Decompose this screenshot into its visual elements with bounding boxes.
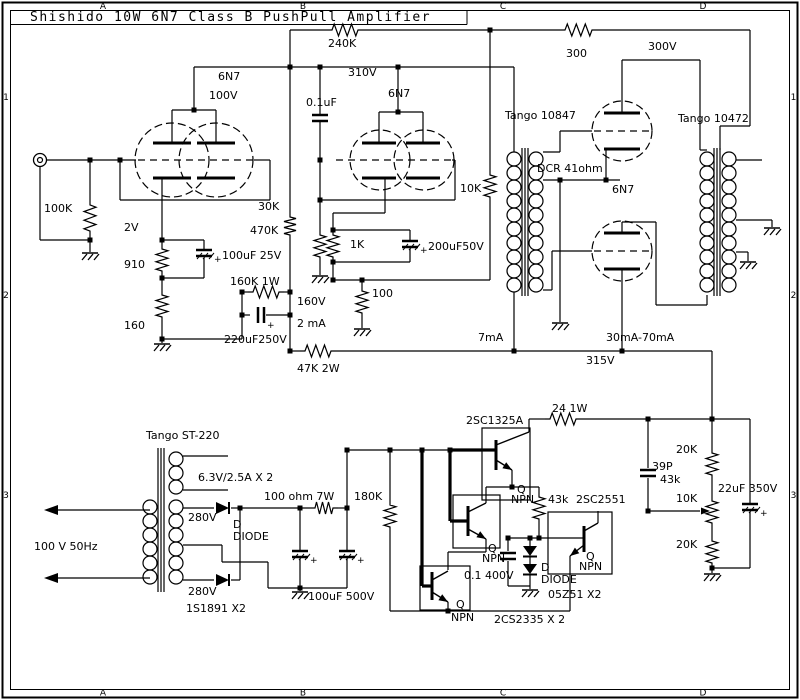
amplifier-schematic: AABBCCDD112233 Shishido 10W 6N7 Class B … (0, 0, 800, 700)
junction-dot (488, 28, 493, 33)
resistor (84, 200, 96, 236)
junction-dot (240, 290, 245, 295)
schematic-label: 1K (350, 238, 365, 251)
transformer-coil (529, 180, 543, 194)
ground-symbol (528, 591, 533, 597)
ground-symbol (354, 330, 359, 336)
transformer-coil (700, 166, 714, 180)
transformer-coil (169, 500, 183, 514)
ground-symbol (764, 229, 769, 235)
schematic-label: 2CS2335 X 2 (494, 613, 565, 626)
ground-symbol (82, 254, 87, 260)
resistor (327, 230, 339, 262)
transformer-coil (700, 152, 714, 166)
junction-dot (238, 506, 243, 511)
transformer-coil (700, 278, 714, 292)
transformer-coil (700, 222, 714, 236)
junction-dot (360, 278, 365, 283)
schematic-label: 43k (660, 473, 681, 486)
junction-dot (510, 485, 515, 490)
transformer-coil (700, 194, 714, 208)
schematic-label: 100 (372, 287, 393, 300)
schematic-label: 6N7 (612, 183, 634, 196)
resistor (706, 536, 718, 568)
ac-arrow (44, 573, 58, 583)
schematic-label: NPN (511, 493, 534, 506)
junction-dot (646, 417, 651, 422)
grid-ref-letter: C (500, 689, 506, 699)
ground-symbol (360, 330, 365, 336)
resistor (560, 24, 597, 36)
transformer-coil (169, 556, 183, 570)
schematic-label: 0.1uF (306, 96, 337, 109)
ground-symbol (324, 277, 329, 283)
schematic-label: 280V (188, 585, 217, 598)
junction-dot (331, 228, 336, 233)
transformer-coil (529, 222, 543, 236)
schematic-label: 100 V 50Hz (34, 540, 98, 553)
schematic-label: 10K (460, 182, 482, 195)
junction-dot (318, 198, 323, 203)
schematic-label: 47K 2W (297, 362, 340, 375)
transformer-coil (169, 528, 183, 542)
ground-symbol (94, 254, 99, 260)
transformer-coil (722, 208, 736, 222)
transformer-coil (700, 250, 714, 264)
junction-dot (160, 238, 165, 243)
transformer-coil (507, 222, 521, 236)
transformer-coil (700, 264, 714, 278)
ground-symbol (534, 591, 539, 597)
transformer-coil (507, 250, 521, 264)
schematic-label: 310V (348, 66, 377, 79)
junction-dot (396, 65, 401, 70)
schematic-label: 39P (652, 460, 673, 473)
schematic-label: 2V (124, 221, 139, 234)
grid-ref-number: 2 (3, 291, 9, 301)
ground-symbol (522, 591, 527, 597)
transformer-coil (507, 236, 521, 250)
diode (216, 502, 229, 514)
input-jack (38, 158, 43, 163)
junction-dot (192, 108, 197, 113)
transformer-coil (507, 152, 521, 166)
ground-symbol (312, 277, 317, 283)
schematic-label: 2SC1325A (466, 414, 524, 427)
junction-dot (345, 448, 350, 453)
junction-dot (288, 65, 293, 70)
transformer-coil (722, 152, 736, 166)
grid-ref-number: 3 (3, 491, 9, 501)
schematic-label: 30K (258, 200, 280, 213)
transformer-coil (529, 236, 543, 250)
grid-ref-letter: D (700, 2, 707, 12)
schematic-label: 220uF250V (224, 333, 287, 346)
schematic-label: 2SC2551 (576, 493, 626, 506)
junction-dot (646, 509, 651, 514)
ground-symbol (318, 277, 323, 283)
schematic-label: Tango ST-220 (145, 429, 219, 442)
junction-dot (331, 278, 336, 283)
transistor-arrow (570, 548, 579, 556)
resistor (310, 502, 338, 514)
ground-symbol (558, 324, 563, 330)
junction-dot (345, 506, 350, 511)
transformer-coil (507, 180, 521, 194)
schematic-label: 24 1W (552, 402, 587, 415)
schematic-label: NPN (579, 560, 602, 573)
resistor (314, 230, 326, 262)
junction-dot (318, 158, 323, 163)
transistor-collector (468, 503, 486, 512)
ground-symbol (154, 345, 159, 351)
schematic-title: Shishido 10W 6N7 Class B PushPull Amplif… (30, 10, 431, 25)
schematic-label: 30mA-70mA (606, 331, 675, 344)
schematic-label: 10K (676, 492, 698, 505)
junction-dot (710, 566, 715, 571)
plus-mark: + (267, 321, 275, 331)
ground-symbol (740, 263, 745, 269)
junction-dot (558, 178, 563, 183)
transformer-coil (722, 166, 736, 180)
junction-dot (88, 158, 93, 163)
ground-symbol (704, 575, 709, 581)
schematic-label: 22uF 350V (718, 482, 778, 495)
junction-dot (288, 313, 293, 318)
schematic-label: 100uF 500V (308, 590, 375, 603)
junction-dot (331, 260, 336, 265)
schematic-label: 0.1 400V (464, 569, 514, 582)
ground-symbol (564, 324, 569, 330)
ground-symbol (776, 229, 781, 235)
schematic-label: 100uF 25V (222, 249, 282, 262)
plus-mark: + (310, 556, 318, 566)
schematic-label: 20K (676, 443, 698, 456)
schematic-label: Tango 10847 (504, 109, 576, 122)
junction-dot (420, 448, 425, 453)
transformer-coil (143, 556, 157, 570)
transformer-coil (169, 514, 183, 528)
schematic-label: 6.3V/2.5A X 2 (198, 471, 273, 484)
ground-symbol (752, 263, 757, 269)
junction-dot (318, 65, 323, 70)
plus-mark: + (760, 509, 768, 519)
transformer-coil (169, 480, 183, 494)
input-jack (34, 154, 47, 167)
ground-symbol (710, 575, 715, 581)
ground-symbol (716, 575, 721, 581)
resistor (484, 170, 496, 202)
junction-dot (506, 536, 511, 541)
plus-mark: + (214, 255, 222, 265)
transformer-coil (722, 180, 736, 194)
transformer-coil (529, 194, 543, 208)
schematic-page: AABBCCDD112233 Shishido 10W 6N7 Class B … (0, 0, 800, 700)
transistor-arrow (438, 594, 448, 602)
labels-layer: 6N7100V240K310V6N70.1uF300300VTango 1084… (34, 37, 778, 626)
transformer-coil (529, 264, 543, 278)
ac-arrow (44, 505, 58, 515)
junction-dot (620, 349, 625, 354)
ground-symbol (552, 324, 557, 330)
schematic-label: Q (456, 598, 465, 611)
schematic-label: 160 (124, 319, 145, 332)
zener-diode (523, 564, 537, 574)
ground-symbol (746, 263, 751, 269)
wires-layer (40, 30, 772, 611)
junction-dot (288, 349, 293, 354)
schematic-label: 200uF50V (428, 240, 484, 253)
junction-dot (604, 178, 609, 183)
schematic-label: NPN (451, 611, 474, 624)
schematic-label: 7mA (478, 331, 504, 344)
grid-ref-letter: B (300, 689, 306, 699)
schematic-label: 43k (548, 493, 569, 506)
schematic-label: 2 mA (297, 317, 326, 330)
transformer-coil (169, 542, 183, 556)
transformer-coil (529, 208, 543, 222)
drawing-frame: AABBCCDD112233 (3, 2, 798, 699)
resistor (706, 496, 718, 528)
junction-dot (298, 586, 303, 591)
junction-dot (88, 238, 93, 243)
transformer-coil (700, 208, 714, 222)
ground-symbol (298, 593, 303, 599)
resistor (156, 244, 168, 276)
schematic-label: 1S1891 X2 (186, 602, 246, 615)
resistor (284, 212, 296, 240)
ground-symbol (88, 254, 93, 260)
resistor (156, 290, 168, 322)
transformer-coil (529, 278, 543, 292)
schematic-label: 100 ohm 7W (264, 490, 334, 503)
junction-dot (118, 158, 123, 163)
schematic-label: DIODE (233, 530, 269, 543)
ground-symbol (166, 345, 171, 351)
transformer-coil (169, 570, 183, 584)
diode (216, 574, 229, 586)
transformer-coil (169, 466, 183, 480)
transformer-coil (169, 452, 183, 466)
junction-dot (446, 609, 451, 614)
transistor-collector (584, 523, 598, 531)
schematic-label: 470K (250, 224, 279, 237)
ground-symbol (292, 593, 297, 599)
transformer-coil (143, 528, 157, 542)
transformer-coil (507, 194, 521, 208)
transformer-coil (722, 250, 736, 264)
junction-dot (160, 337, 165, 342)
ground-symbol (160, 345, 165, 351)
schematic-label: DIODE (541, 573, 577, 586)
junction-dot (537, 536, 542, 541)
grid-ref-number: 1 (3, 93, 9, 103)
transformer-coil (143, 514, 157, 528)
transformer-coil (700, 180, 714, 194)
transformer-coil (722, 194, 736, 208)
transistor-arrow (476, 531, 486, 539)
transformer-coil (507, 264, 521, 278)
transformer-coil (722, 222, 736, 236)
transistor-collector (432, 571, 448, 580)
junction-dot (298, 506, 303, 511)
resistor (706, 448, 718, 480)
junction-dot (388, 448, 393, 453)
grid-ref-number: 1 (791, 93, 797, 103)
grid-ref-letter: A (100, 689, 107, 699)
schematic-label: Tango 10472 (677, 112, 749, 125)
plus-mark: + (420, 246, 428, 256)
grid-ref-letter: D (700, 689, 707, 699)
ground-symbol (770, 229, 775, 235)
resistor (533, 492, 545, 524)
junction-dot (288, 290, 293, 295)
junction-dot (528, 536, 533, 541)
schematic-label: 240K (328, 37, 357, 50)
ground-symbol (366, 330, 371, 336)
transformer-coil (529, 250, 543, 264)
schematic-label: NPN (482, 552, 505, 565)
junction-dot (512, 349, 517, 354)
schematic-label: DCR 41ohm (537, 162, 603, 175)
grid-ref-number: 3 (791, 491, 797, 501)
schematic-label: 180K (354, 490, 383, 503)
junction-dot (448, 448, 453, 453)
grid-ref-number: 2 (791, 291, 797, 301)
schematic-label: 05Z51 X2 (548, 588, 602, 601)
transformer-coil (722, 264, 736, 278)
schematic-label: 300V (648, 40, 677, 53)
resistor (327, 24, 363, 36)
schematic-label: 160V (297, 295, 326, 308)
resistor (384, 500, 396, 532)
transformer-coil (507, 208, 521, 222)
transformer-coil (507, 166, 521, 180)
schematic-label: 300 (566, 47, 587, 60)
resistor (300, 345, 336, 357)
schematic-label: 100V (209, 89, 238, 102)
zener-diode (523, 546, 537, 556)
schematic-label: 315V (586, 354, 615, 367)
schematic-label: 20K (676, 538, 698, 551)
junction-dot (160, 276, 165, 281)
transformer-coil (507, 278, 521, 292)
transformer-coil (143, 500, 157, 514)
transistor-collector (496, 432, 529, 445)
schematic-label: 160K 1W (230, 275, 280, 288)
schematic-label: 6N7 (218, 70, 240, 83)
schematic-label: 280V (188, 511, 217, 524)
plus-mark: + (357, 556, 365, 566)
schematic-label: 100K (44, 202, 73, 215)
junction-dot (710, 417, 715, 422)
transistor-arrow (502, 462, 512, 470)
transformer-coil (722, 236, 736, 250)
junction-dot (240, 313, 245, 318)
outer-border (3, 3, 798, 698)
transformer-coil (722, 278, 736, 292)
junction-dot (396, 110, 401, 115)
transformer-coil (143, 542, 157, 556)
schematic-label: 6N7 (388, 87, 410, 100)
grid-ref-letter: C (500, 2, 506, 12)
transformer-coil (700, 236, 714, 250)
schematic-label: 910 (124, 258, 145, 271)
resistor (356, 286, 368, 318)
transformer-coil (143, 570, 157, 584)
